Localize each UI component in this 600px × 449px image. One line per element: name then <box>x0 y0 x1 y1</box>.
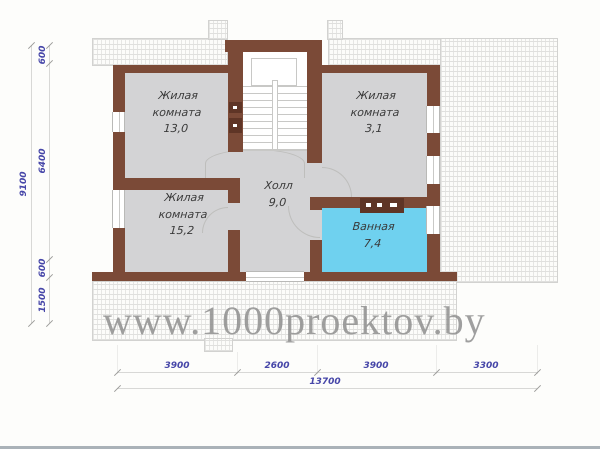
wall-stair-right <box>307 40 322 163</box>
room-name: Жилая <box>326 88 427 105</box>
wall-top-left <box>113 65 228 73</box>
room-label-hall: Холл 9,0 <box>237 178 319 211</box>
floor-plan-canvas: Жилая комната 13,0 Жилая комната 3,1 Жил… <box>0 0 600 449</box>
dim-tick <box>28 320 35 327</box>
terrace-hatch-top-left <box>92 38 228 66</box>
dim-label-bottom-3300: 3300 <box>456 361 516 371</box>
room-label-living3: Жилая комната 15,2 <box>131 190 234 240</box>
window-bottom-hall <box>246 271 304 282</box>
dim-label-bottom-2600: 2600 <box>247 361 307 371</box>
room-area: 7,4 <box>332 236 413 253</box>
dim-label-bottom-3900b: 3900 <box>346 361 406 371</box>
window-right-bath <box>426 206 440 234</box>
dim-line-left-chain <box>49 45 50 323</box>
window-left-room15 <box>112 190 125 228</box>
window-right-2 <box>426 156 440 184</box>
wall-mid-horizontal <box>113 178 240 190</box>
room-name: Ванная <box>333 219 414 236</box>
room-name: комната <box>126 105 227 122</box>
room-name: комната <box>132 207 233 224</box>
door-arc-stairs <box>205 149 305 178</box>
dim-label-bottom-13700: 13700 <box>295 377 355 387</box>
window-left-room13 <box>112 112 125 132</box>
room-name: комната <box>324 105 425 122</box>
dim-label-left-9100: 9100 <box>19 169 29 199</box>
dim-line-bottom-total <box>117 388 537 389</box>
room-area: 15,2 <box>131 223 232 240</box>
room-name: Жилая <box>128 88 229 105</box>
dim-tick <box>46 320 53 327</box>
window-right-1 <box>426 106 440 133</box>
watermark-text: www.1000proektov.by <box>103 297 486 344</box>
stair-bottom-edge <box>243 150 307 151</box>
room-area: 13,0 <box>125 121 226 138</box>
terrace-hatch-top-right <box>328 38 443 66</box>
wall-top-right <box>322 65 440 73</box>
dim-label-left-600a: 600 <box>38 40 48 70</box>
wall-bath-left-lower <box>310 240 322 272</box>
stair-stringer <box>272 80 278 150</box>
room-name: Жилая <box>134 190 235 207</box>
room-label-living1: Жилая комната 13,0 <box>125 88 228 138</box>
dim-label-left-6400: 6400 <box>38 146 48 176</box>
dim-tick <box>534 385 541 392</box>
dim-label-left-600b: 600 <box>38 253 48 283</box>
room-area: 3,1 <box>323 121 424 138</box>
wall-exterior-left <box>113 65 125 281</box>
bathroom-vent-block <box>360 198 404 213</box>
dim-label-bottom-3900a: 3900 <box>147 361 207 371</box>
wall-stair-left <box>228 40 243 152</box>
room-label-living2: Жилая комната 3,1 <box>323 88 426 138</box>
room-area: 9,0 <box>237 195 318 212</box>
room-label-bath: Ванная 7,4 <box>332 219 414 252</box>
stair-wall-block-2 <box>229 118 242 133</box>
room-name: Холл <box>238 178 319 195</box>
dim-label-left-1500: 1500 <box>38 285 48 315</box>
stair-wall-block-1 <box>229 102 242 113</box>
dim-line-left-outer <box>31 45 32 323</box>
roof-hatch-right <box>440 38 558 283</box>
chimney-top-right <box>327 20 343 40</box>
chimney-top-left <box>208 20 228 40</box>
dim-tick <box>534 369 541 376</box>
dim-line-bottom-chain <box>117 372 537 373</box>
